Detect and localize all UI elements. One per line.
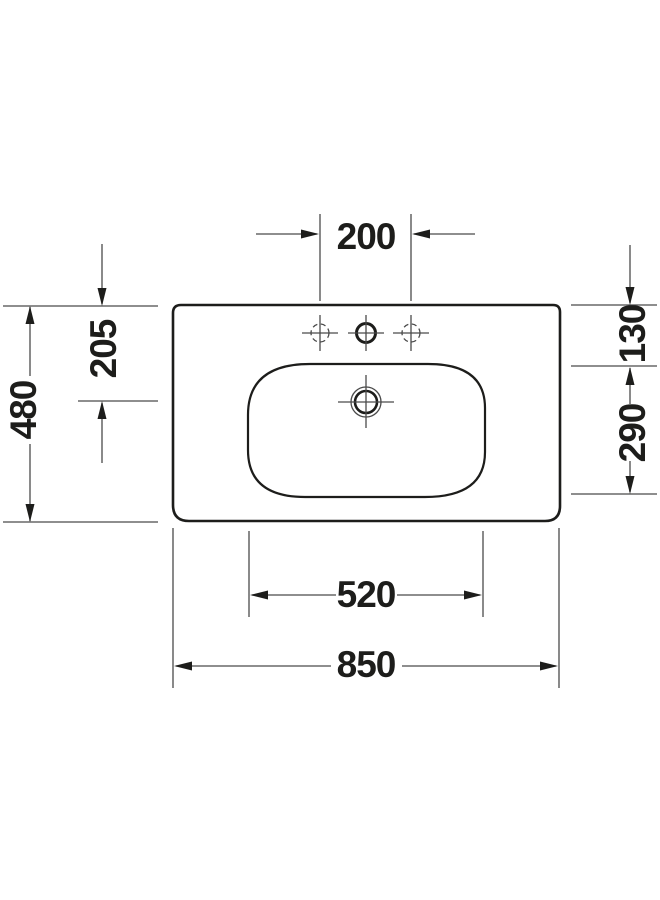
tap-hole-left-icon (302, 315, 338, 351)
drain-icon (338, 375, 394, 428)
dim-850-label: 850 (337, 644, 396, 685)
arrowhead-right-icon (464, 591, 482, 600)
dim-290-label: 290 (612, 403, 653, 462)
arrowhead-left-icon (250, 591, 268, 600)
technical-drawing-canvas: 200 480 205 130 (0, 0, 660, 900)
dimension-basin-width: 520 (249, 531, 483, 617)
tap-hole-center-icon (348, 315, 384, 351)
arrowhead-right-icon (301, 230, 319, 239)
arrowhead-down-icon (26, 504, 35, 522)
washbasin-diagram: 200 480 205 130 (0, 0, 660, 900)
arrowhead-up-icon (26, 306, 35, 324)
dim-130-label: 130 (612, 304, 653, 363)
arrowhead-down-icon (626, 287, 635, 305)
dim-200-label: 200 (337, 216, 396, 257)
arrowhead-down-icon (98, 288, 107, 306)
arrowhead-up-icon (98, 401, 107, 419)
arrowhead-left-icon (174, 662, 192, 671)
arrowhead-down-icon (626, 476, 635, 494)
dimension-tap-hole-spacing: 200 (256, 214, 475, 301)
dimension-front-to-drain: 205 (78, 244, 158, 463)
dim-480-label: 480 (3, 380, 44, 439)
dimension-overall-depth: 480 (3, 306, 158, 522)
tap-hole-right-icon (393, 315, 429, 351)
dimension-right-stack: 130 290 (571, 245, 657, 494)
arrowhead-left-icon (412, 230, 430, 239)
dim-520-label: 520 (337, 574, 396, 615)
dim-205-label: 205 (83, 319, 124, 378)
arrowhead-right-icon (540, 662, 558, 671)
arrowhead-up-icon (626, 367, 635, 385)
